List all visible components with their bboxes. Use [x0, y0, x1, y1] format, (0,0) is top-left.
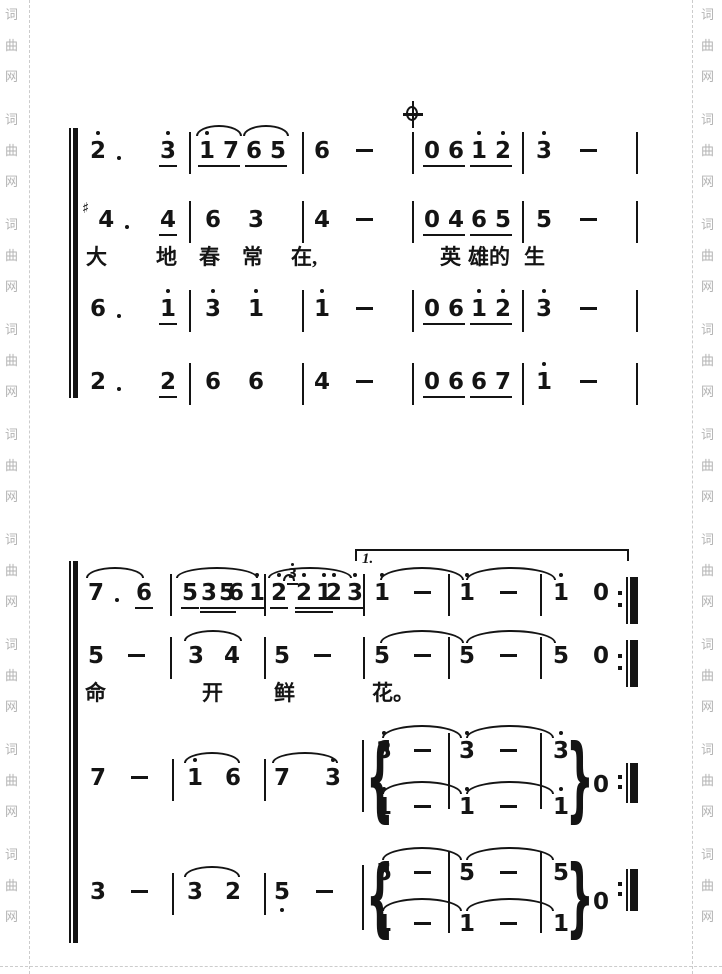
note-digit: 1 — [459, 912, 475, 936]
beam-underline — [200, 611, 236, 613]
note: 5 — [553, 644, 569, 668]
barline — [302, 132, 304, 174]
watermark-char: 曲 — [5, 39, 18, 53]
watermark-char: 词 — [701, 218, 714, 232]
duration-dash — [500, 654, 517, 657]
note-digit: 1 — [471, 297, 487, 321]
octave-up-dot — [322, 573, 326, 577]
note-digit: 5 — [270, 139, 286, 163]
watermark-char: 网 — [701, 700, 714, 714]
note: 0 — [593, 644, 609, 668]
watermark-char: 曲 — [5, 459, 18, 473]
note: 3 — [90, 880, 106, 904]
note-digit: 1 — [249, 581, 265, 605]
lyric-syllable: 在, — [291, 245, 317, 269]
barline — [302, 363, 304, 405]
slur — [176, 567, 258, 578]
beam-underline — [295, 611, 333, 613]
duration-dash — [356, 380, 373, 383]
volta-bracket: 1. — [355, 549, 629, 561]
note-digit: 1 — [376, 912, 392, 936]
octave-up-dot — [477, 131, 481, 135]
note: 2 — [90, 139, 121, 163]
watermark-char: 曲 — [701, 39, 714, 53]
note-digit: 6 — [448, 297, 464, 321]
beam-underline — [181, 607, 199, 609]
beam-underline — [227, 607, 266, 609]
octave-up-dot — [559, 731, 563, 735]
octave-up-dot — [205, 131, 209, 135]
octave-up-dot — [211, 289, 215, 293]
watermark-char: 曲 — [701, 354, 714, 368]
beam-underline — [423, 323, 465, 325]
slur — [466, 630, 556, 643]
watermark-char: 词 — [5, 638, 18, 652]
watermark-char: 网 — [5, 70, 18, 84]
note: 3 — [536, 139, 552, 163]
coda-icon — [403, 101, 423, 128]
note-digit: 6 — [136, 581, 152, 605]
note-digit: 1 — [160, 297, 176, 321]
barline — [264, 873, 266, 915]
note-digit: 3 — [187, 880, 203, 904]
duration-dash — [580, 218, 597, 221]
watermark-char: 网 — [5, 910, 18, 924]
note: 3 — [536, 297, 552, 321]
barline — [412, 132, 414, 174]
note: 6 — [248, 370, 264, 394]
barline — [363, 637, 365, 679]
note-digit: 5 — [374, 644, 390, 668]
watermark-char: 网 — [701, 70, 714, 84]
barline — [302, 201, 304, 243]
note: 5 — [376, 861, 392, 885]
watermark-char: 网 — [701, 490, 714, 504]
note-digit: 0 — [593, 581, 609, 605]
note: 0 — [593, 581, 609, 605]
watermark-char: 词 — [701, 113, 714, 127]
note: 3 — [459, 739, 475, 763]
note-digit: 2 — [495, 297, 511, 321]
watermark-char: 网 — [701, 280, 714, 294]
watermark-char: 词 — [701, 533, 714, 547]
repeat-dot — [618, 603, 622, 607]
note-digit: 1 — [376, 795, 392, 819]
barline — [362, 740, 364, 812]
octave-up-dot — [277, 573, 281, 577]
watermark-char: 词 — [701, 428, 714, 442]
watermark-char: 曲 — [5, 144, 18, 158]
note-digit: 3 — [160, 139, 176, 163]
note: 6 — [90, 297, 121, 321]
duration-dash — [414, 922, 431, 925]
lyric-syllable: 命 — [85, 681, 106, 705]
note-digit: 6 — [90, 297, 106, 321]
duration-dash — [131, 776, 148, 779]
note: 4 — [314, 208, 330, 232]
watermark-char: 网 — [5, 700, 18, 714]
note: 5 — [536, 208, 552, 232]
barline — [264, 759, 266, 801]
note-digit: 1 — [459, 795, 475, 819]
note: 1 — [376, 912, 392, 936]
note: 4 — [224, 644, 240, 668]
repeat-dot — [618, 775, 622, 779]
note: 1 — [314, 297, 330, 321]
barline — [412, 290, 414, 332]
note-digit: 5 — [376, 861, 392, 885]
note: 1 — [459, 912, 475, 936]
octave-up-dot — [559, 573, 563, 577]
barline — [172, 873, 174, 915]
octave-down-dot — [280, 908, 284, 912]
note-digit: 5 — [182, 581, 198, 605]
note: 6 — [205, 208, 221, 232]
note: 2 — [160, 370, 176, 394]
repeat-end-barline — [618, 577, 638, 624]
note-digit: 2 — [160, 370, 176, 394]
barline — [540, 574, 542, 616]
note-digit: 7 — [274, 766, 290, 790]
barline — [448, 637, 450, 679]
slur — [380, 567, 464, 580]
repeat-thin-bar — [626, 640, 628, 687]
watermark-char: 网 — [5, 805, 18, 819]
repeat-thin-bar — [626, 577, 628, 624]
note: 1 — [374, 581, 390, 605]
note-digit: 4 — [314, 370, 330, 394]
note: 12 — [471, 139, 511, 163]
beam-underline — [423, 165, 465, 167]
barline — [170, 574, 172, 616]
note-digit: 3 — [376, 739, 392, 763]
note-digit: 3 — [248, 208, 264, 232]
barline — [189, 363, 191, 405]
beam-underline — [198, 165, 240, 167]
note: 0 — [593, 773, 609, 797]
beam-underline — [159, 396, 177, 398]
note-digit: 2 — [225, 880, 241, 904]
note-digit: 1 — [553, 581, 569, 605]
watermark-char: 网 — [5, 385, 18, 399]
page-bottom-divider — [0, 966, 722, 967]
note-digit: 5 — [495, 208, 511, 232]
note-digit: 1 — [314, 297, 330, 321]
duration-dash — [500, 805, 517, 808]
octave-up-dot — [166, 131, 170, 135]
watermark-char: 网 — [701, 805, 714, 819]
barline — [412, 201, 414, 243]
note-digit: 0 — [424, 208, 440, 232]
duration-dash — [500, 871, 517, 874]
note-digit: 1 — [536, 370, 552, 394]
slur — [196, 125, 242, 136]
note-digit: 0 — [593, 890, 609, 914]
watermark-char: 词 — [701, 743, 714, 757]
watermark-char: 网 — [701, 910, 714, 924]
watermark-char: 曲 — [701, 879, 714, 893]
slur — [268, 567, 352, 578]
note: 4 — [160, 208, 176, 232]
duration-dash — [580, 307, 597, 310]
repeat-dot — [618, 785, 622, 789]
barline — [540, 637, 542, 679]
slur — [184, 630, 242, 641]
note-digit: 2 — [495, 139, 511, 163]
note-digit: 0 — [593, 773, 609, 797]
octave-up-dot — [559, 787, 563, 791]
duration-dot — [117, 387, 121, 391]
slur — [243, 125, 289, 136]
watermark-char: 词 — [5, 533, 18, 547]
duration-dash — [356, 149, 373, 152]
watermark-char: 词 — [5, 743, 18, 757]
watermark-char: 网 — [5, 175, 18, 189]
beam-underline — [159, 234, 177, 236]
note-digit: 6 — [248, 370, 264, 394]
beam-underline — [470, 234, 512, 236]
note-digit: 4 — [224, 644, 240, 668]
note-digit: 1 — [374, 581, 390, 605]
note: 5 — [459, 861, 475, 885]
note-digit: 0 — [424, 370, 440, 394]
note: 67 — [471, 370, 511, 394]
duration-dash — [414, 871, 431, 874]
note: 1 — [553, 912, 569, 936]
watermark-char: 词 — [701, 638, 714, 652]
octave-up-dot — [331, 758, 335, 762]
note-digit: 1 — [553, 795, 569, 819]
note: 1 — [459, 795, 475, 819]
watermark-dashed-line — [29, 0, 30, 974]
note-digit: 6 — [471, 370, 487, 394]
barline — [522, 201, 524, 243]
note: 23 — [326, 581, 363, 605]
beam-underline — [325, 607, 364, 609]
note-digit: 3 — [201, 581, 217, 605]
note: 1 — [459, 581, 475, 605]
barline — [448, 733, 450, 809]
watermark-char: 网 — [701, 175, 714, 189]
slur — [184, 752, 240, 763]
note: 5 — [182, 581, 198, 605]
note-digit: 5 — [553, 644, 569, 668]
watermark-char: 词 — [701, 8, 714, 22]
lyric-syllable: 的 — [489, 245, 510, 269]
duration-dash — [414, 654, 431, 657]
note-digit: 1 — [471, 139, 487, 163]
barline — [302, 290, 304, 332]
note-digit: 5 — [459, 861, 475, 885]
note: 3 — [205, 297, 221, 321]
barline — [636, 363, 638, 405]
octave-up-dot — [193, 758, 197, 762]
repeat-dot — [618, 591, 622, 595]
watermark-char: 网 — [5, 490, 18, 504]
octave-up-dot — [302, 573, 306, 577]
repeat-thin-bar — [626, 763, 628, 803]
octave-up-dot — [542, 362, 546, 366]
slur — [382, 898, 462, 911]
sheet-music-page: 词曲网词曲网词曲网词曲网词曲网词曲网词曲网词曲网词曲网 词曲网词曲网词曲网词曲网… — [0, 0, 722, 974]
octave-up-dot — [255, 573, 259, 577]
slur — [466, 567, 556, 580]
note-digit: 6 — [205, 370, 221, 394]
watermark-char: 词 — [5, 218, 18, 232]
barline — [189, 290, 191, 332]
note-digit: 6 — [448, 139, 464, 163]
note: 4 — [314, 370, 330, 394]
watermark-char: 词 — [5, 8, 18, 22]
lyric-syllable: 英 — [440, 245, 461, 269]
duration-dash — [356, 218, 373, 221]
lyric-syllable: 开 — [202, 681, 223, 705]
barline — [636, 201, 638, 243]
note: 3 — [325, 766, 341, 790]
octave-up-dot — [254, 289, 258, 293]
note-digit: 1 — [187, 766, 203, 790]
lyric-syllable: 春 — [199, 245, 220, 269]
beam-underline — [423, 396, 465, 398]
sharp-icon: ♯ — [82, 201, 89, 225]
note-digit: 7 — [88, 581, 104, 605]
beam-underline — [423, 234, 465, 236]
beam-underline — [245, 165, 287, 167]
note-digit: 5 — [536, 208, 552, 232]
beam-underline — [159, 323, 177, 325]
octave-up-dot — [96, 131, 100, 135]
barline — [540, 733, 542, 809]
note-digit: 2 — [271, 581, 287, 605]
beam-underline — [470, 165, 512, 167]
lyric-syllable: 雄 — [468, 245, 489, 269]
octave-up-dot — [353, 573, 357, 577]
bracket-thin-line — [69, 561, 71, 943]
note-digit: 2 — [90, 370, 106, 394]
note: 1 — [553, 795, 569, 819]
note: ♯4 — [82, 208, 129, 232]
repeat-dot — [618, 654, 622, 658]
lyric-syllable: 常 — [242, 245, 263, 269]
note-digit: 7 — [495, 370, 511, 394]
duration-dot — [117, 156, 121, 160]
watermark-char: 曲 — [5, 879, 18, 893]
bracket-thin-line — [69, 128, 71, 398]
duration-dash — [580, 380, 597, 383]
note-digit: 0 — [593, 644, 609, 668]
note: 1 — [553, 581, 569, 605]
note-digit: 6 — [225, 766, 241, 790]
note-digit: 3 — [205, 297, 221, 321]
duration-dash — [414, 591, 431, 594]
repeat-thick-bar — [630, 577, 638, 624]
watermark-char: 曲 — [701, 459, 714, 473]
watermark-dashed-line — [692, 0, 693, 974]
note-digit: 1 — [248, 297, 264, 321]
note: 0 — [593, 890, 609, 914]
repeat-dot — [618, 666, 622, 670]
note-digit: 2 — [296, 581, 312, 605]
note: 1 — [536, 370, 552, 394]
barline — [170, 637, 172, 679]
note-digit: 3 — [188, 644, 204, 668]
note-digit: 3 — [536, 139, 552, 163]
note: 3 — [160, 139, 176, 163]
watermark-char: 曲 — [701, 564, 714, 578]
barline — [522, 290, 524, 332]
beam-underline — [470, 323, 512, 325]
note-digit: 6 — [228, 581, 244, 605]
coda-horizontal — [403, 113, 423, 116]
bracket-thick-line — [73, 561, 78, 943]
note-digit: 1 — [199, 139, 215, 163]
barline — [540, 851, 542, 933]
note-digit: 4 — [98, 208, 114, 232]
note: 5 — [274, 644, 290, 668]
note-digit: 6 — [246, 139, 262, 163]
barline — [412, 363, 414, 405]
note: 04 — [424, 208, 464, 232]
note-digit: 3 — [459, 739, 475, 763]
note-digit: 2 — [90, 139, 106, 163]
duration-dash — [580, 149, 597, 152]
duration-dash — [414, 749, 431, 752]
watermark-char: 词 — [701, 848, 714, 862]
duration-dash — [356, 307, 373, 310]
slur — [272, 752, 338, 763]
watermark-char: 网 — [5, 280, 18, 294]
beam-underline — [135, 607, 153, 609]
volta-label: 1. — [362, 551, 373, 567]
slur — [382, 781, 462, 794]
barline — [172, 759, 174, 801]
note: 06 — [424, 297, 464, 321]
note-digit: 5 — [274, 644, 290, 668]
watermark-char: 曲 — [701, 774, 714, 788]
duration-dash — [128, 654, 145, 657]
system-bracket — [69, 128, 79, 398]
slur — [184, 866, 240, 877]
lyric-syllable: 大 — [86, 245, 107, 269]
note-digit: 1 — [459, 581, 475, 605]
slur — [382, 847, 462, 860]
barline — [362, 865, 364, 930]
note-digit: 6 — [471, 208, 487, 232]
barline — [264, 637, 266, 679]
note: 2 — [225, 880, 241, 904]
note: 6 — [205, 370, 221, 394]
note-digit: 3 — [325, 766, 341, 790]
note-digit: 7 — [223, 139, 239, 163]
octave-up-dot — [477, 289, 481, 293]
barline — [189, 201, 191, 243]
note: 3 — [376, 739, 392, 763]
barline — [522, 132, 524, 174]
lyric-syllable: 花。 — [372, 681, 414, 705]
watermark-char: 曲 — [5, 249, 18, 263]
duration-dash — [500, 591, 517, 594]
watermark-char: 词 — [5, 113, 18, 127]
note-digit: 0 — [424, 297, 440, 321]
note: 3 — [248, 208, 264, 232]
lyric-syllable: 生 — [524, 245, 545, 269]
note: 5 — [274, 880, 290, 904]
note-digit: 4 — [448, 208, 464, 232]
note: 65 — [246, 139, 286, 163]
slur — [380, 630, 464, 643]
note-digit: 7 — [90, 766, 106, 790]
system-bracket — [69, 561, 79, 943]
